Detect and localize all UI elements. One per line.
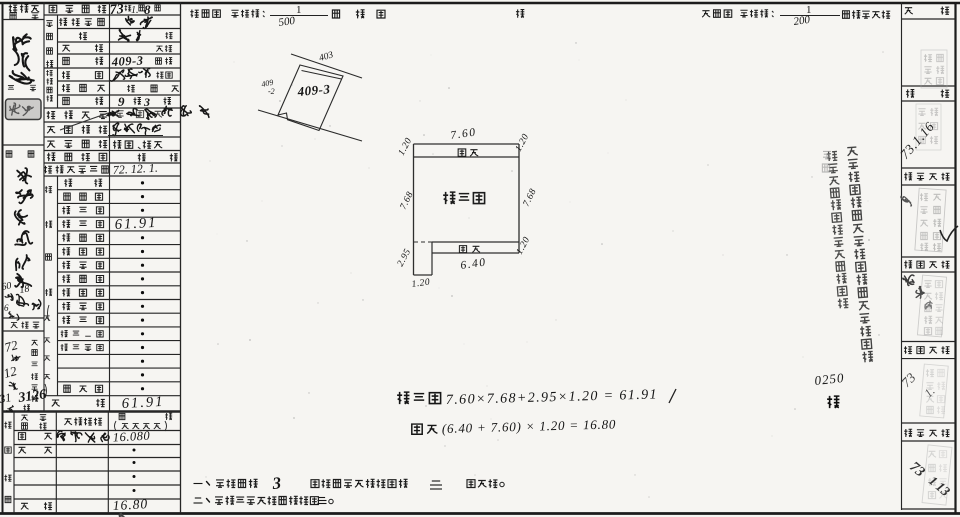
svg-text:6: 6 bbox=[4, 303, 9, 313]
svg-text:409-3: 409-3 bbox=[296, 81, 331, 99]
svg-text:16.80: 16.80 bbox=[112, 496, 148, 513]
svg-text:9: 9 bbox=[118, 94, 125, 109]
svg-text:200: 200 bbox=[793, 14, 812, 28]
svg-text:8: 8 bbox=[144, 2, 151, 17]
svg-text:0250: 0250 bbox=[814, 370, 845, 388]
svg-text:1: 1 bbox=[296, 4, 302, 16]
svg-text:1.: 1. bbox=[131, 5, 139, 16]
svg-text:-2: -2 bbox=[268, 87, 275, 96]
svg-text:72. 12. 1.: 72. 12. 1. bbox=[112, 161, 158, 177]
svg-text:73: 73 bbox=[109, 2, 124, 18]
svg-text:61.91: 61.91 bbox=[114, 215, 157, 233]
svg-text:18: 18 bbox=[19, 283, 31, 296]
svg-text:409-3: 409-3 bbox=[110, 53, 143, 69]
svg-text:60: 60 bbox=[1, 280, 13, 293]
svg-text:61.91: 61.91 bbox=[121, 394, 164, 412]
svg-text:500: 500 bbox=[278, 15, 297, 29]
svg-text:16.080: 16.080 bbox=[112, 429, 150, 445]
svg-text:3: 3 bbox=[143, 95, 150, 109]
